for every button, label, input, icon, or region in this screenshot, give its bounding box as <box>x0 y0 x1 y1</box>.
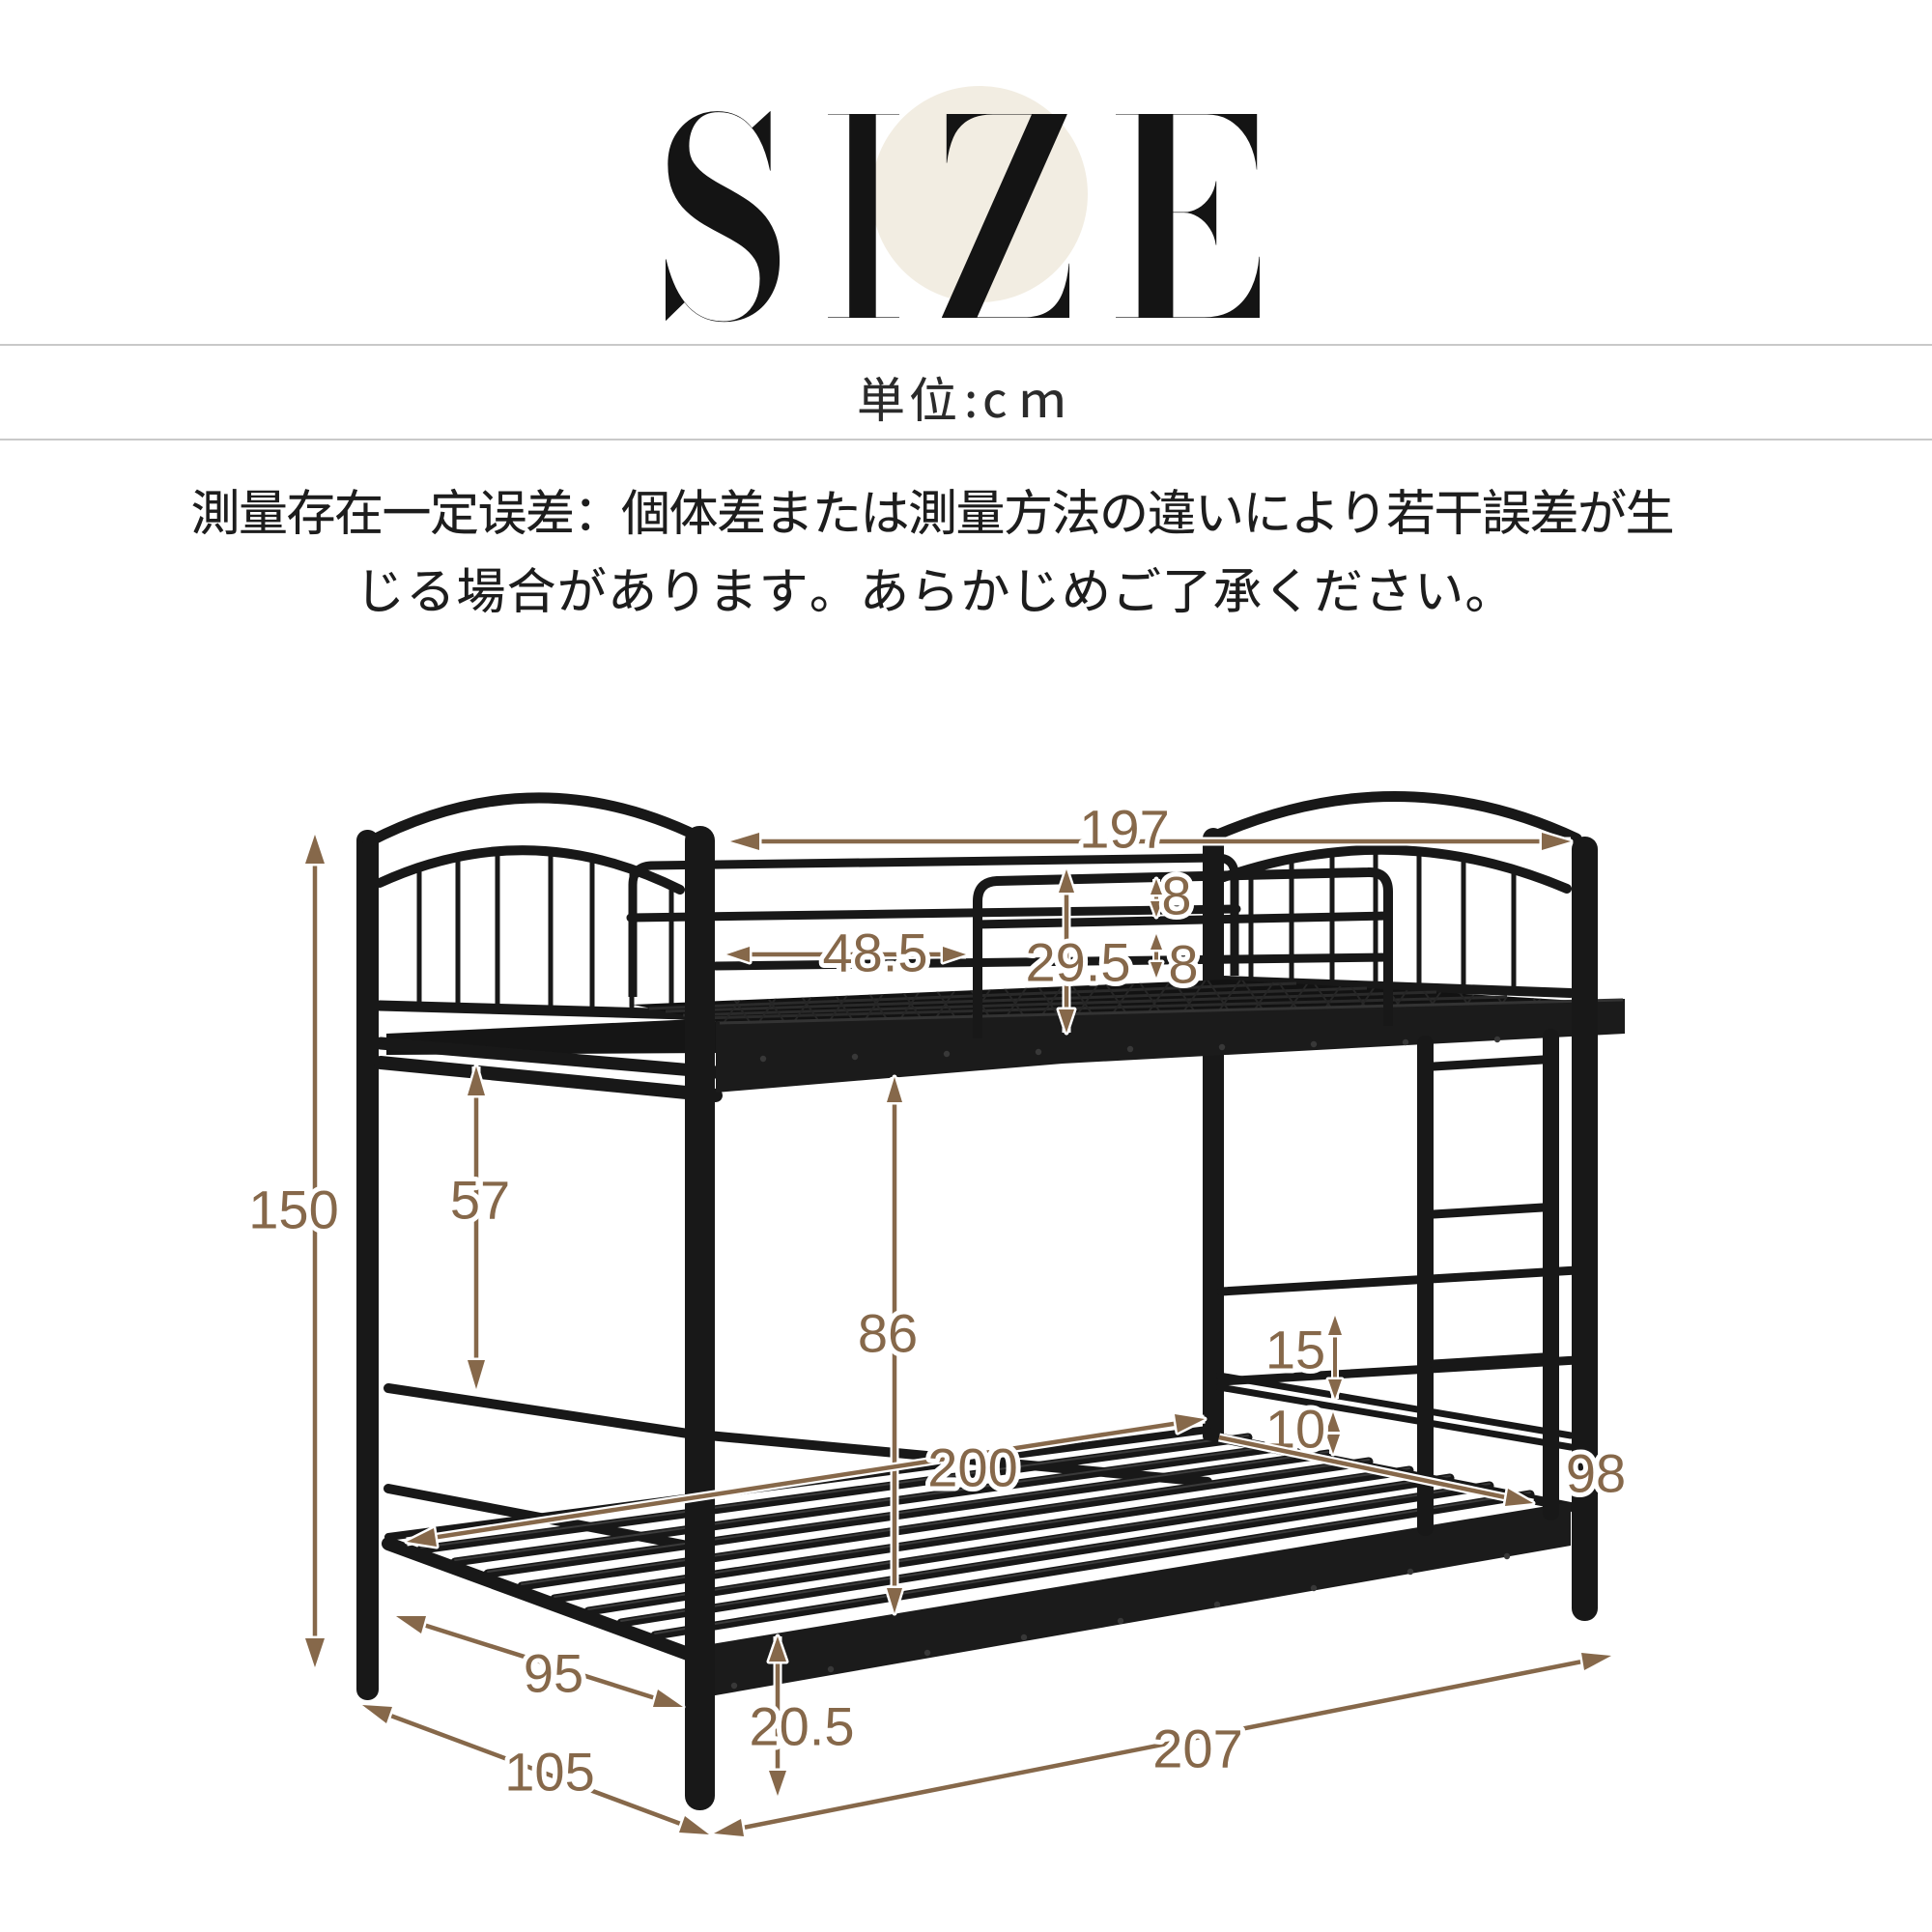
svg-text:48.5: 48.5 <box>823 923 928 983</box>
svg-text:200: 200 <box>927 1437 1017 1498</box>
svg-text:98: 98 <box>1566 1443 1626 1504</box>
svg-text:95: 95 <box>524 1643 583 1704</box>
svg-text:8: 8 <box>1168 934 1198 995</box>
svg-text:15: 15 <box>1265 1320 1325 1380</box>
svg-text:20.5: 20.5 <box>750 1696 855 1757</box>
svg-text:207: 207 <box>1152 1719 1242 1779</box>
svg-text:197: 197 <box>1079 799 1169 860</box>
svg-text:57: 57 <box>450 1170 510 1231</box>
svg-text:150: 150 <box>248 1179 338 1240</box>
svg-text:8: 8 <box>1161 866 1191 926</box>
svg-text:86: 86 <box>858 1303 918 1364</box>
svg-text:105: 105 <box>504 1742 594 1803</box>
svg-text:29.5: 29.5 <box>1026 932 1131 993</box>
